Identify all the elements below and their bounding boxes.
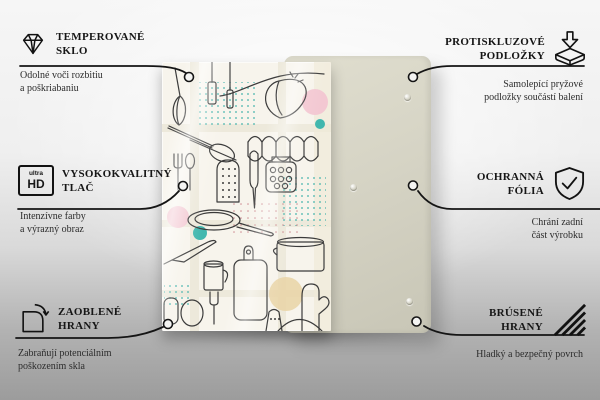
callout-rounded-edges: ZAOBLENÉ HRANY Zabraňují potenciálním po… xyxy=(16,302,168,373)
callout-title: VYSOKOKVALITNÝ TLAČ xyxy=(62,167,172,195)
callout-high-quality-print: ultra HD VYSOKOKVALITNÝ TLAČ Intenzívne … xyxy=(18,165,170,236)
callout-subtitle: Intenzívne farby a výrazný obraz xyxy=(20,211,170,236)
callout-protective-film: OCHRANNÁ FÓLIA Chrání zadní část výrobku xyxy=(430,165,592,242)
callout-title: OCHRANNÁ FÓLIA xyxy=(477,170,544,198)
anti-slip-pad xyxy=(406,298,413,305)
callout-subtitle: Odolné voči rozbitiu a poškriabaniu xyxy=(20,70,170,95)
anti-slip-pad xyxy=(350,184,357,191)
callout-title: BRÚSENÉ HRANY xyxy=(489,306,543,334)
callout-title: PROTISKLUZOVÉ PODLOŽKY xyxy=(445,35,545,63)
callout-subtitle: Chrání zadní část výrobku xyxy=(430,217,592,242)
shield-check-icon xyxy=(552,165,587,202)
callout-subtitle: Zabraňují potenciálním poškozením skla xyxy=(18,348,168,373)
diamond-icon xyxy=(18,31,48,57)
callout-title: ZAOBLENÉ HRANY xyxy=(58,305,122,333)
anti-slip-pad-icon xyxy=(553,30,587,67)
product-infographic: TEMPEROVANÉ SKLO Odolné voči rozbitiu a … xyxy=(0,0,600,400)
callout-subtitle: Samolepící pryžové podložky součástí bal… xyxy=(430,79,592,104)
rounded-corner-icon xyxy=(16,302,50,336)
kitchen-doodle-print xyxy=(162,62,331,331)
hatched-edges-icon xyxy=(551,303,587,337)
anti-slip-pad xyxy=(404,94,411,101)
callout-ground-edges: BRÚSENÉ HRANY Hladký a bezpečný povrch xyxy=(430,303,592,362)
callout-anti-slip-pads: PROTISKLUZOVÉ PODLOŽKY Samolepící pryžov… xyxy=(430,30,592,104)
ultra-hd-icon: ultra HD xyxy=(18,165,54,196)
callout-subtitle: Hladký a bezpečný povrch xyxy=(430,349,592,362)
callout-title: TEMPEROVANÉ SKLO xyxy=(56,30,145,58)
callout-tempered-glass: TEMPEROVANÉ SKLO Odolné voči rozbitiu a … xyxy=(18,30,170,95)
glass-panel xyxy=(162,62,331,331)
